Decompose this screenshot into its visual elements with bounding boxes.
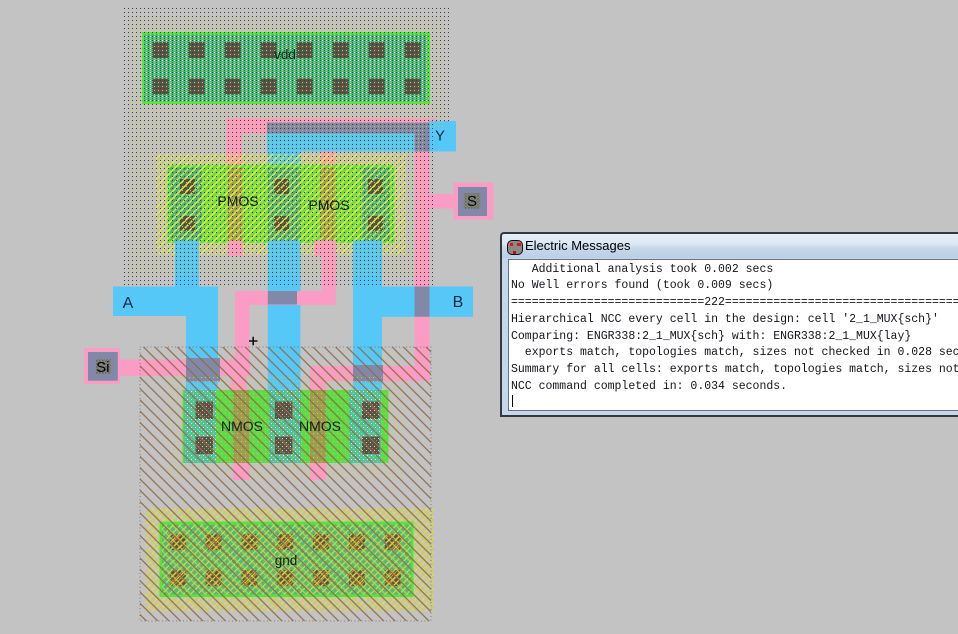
svg-text:NMOS: NMOS — [299, 418, 341, 434]
svg-text:Si: Si — [96, 359, 109, 376]
svg-text:PMOS: PMOS — [308, 197, 349, 213]
svg-text:B: B — [453, 294, 464, 311]
svg-text:A: A — [123, 295, 134, 312]
svg-text:gnd: gnd — [275, 553, 298, 568]
svg-text:vdd: vdd — [274, 47, 296, 62]
svg-text:S: S — [467, 193, 477, 210]
svg-text:NMOS: NMOS — [221, 418, 263, 434]
svg-text:Y: Y — [435, 128, 445, 145]
svg-text:PMOS: PMOS — [217, 193, 258, 209]
